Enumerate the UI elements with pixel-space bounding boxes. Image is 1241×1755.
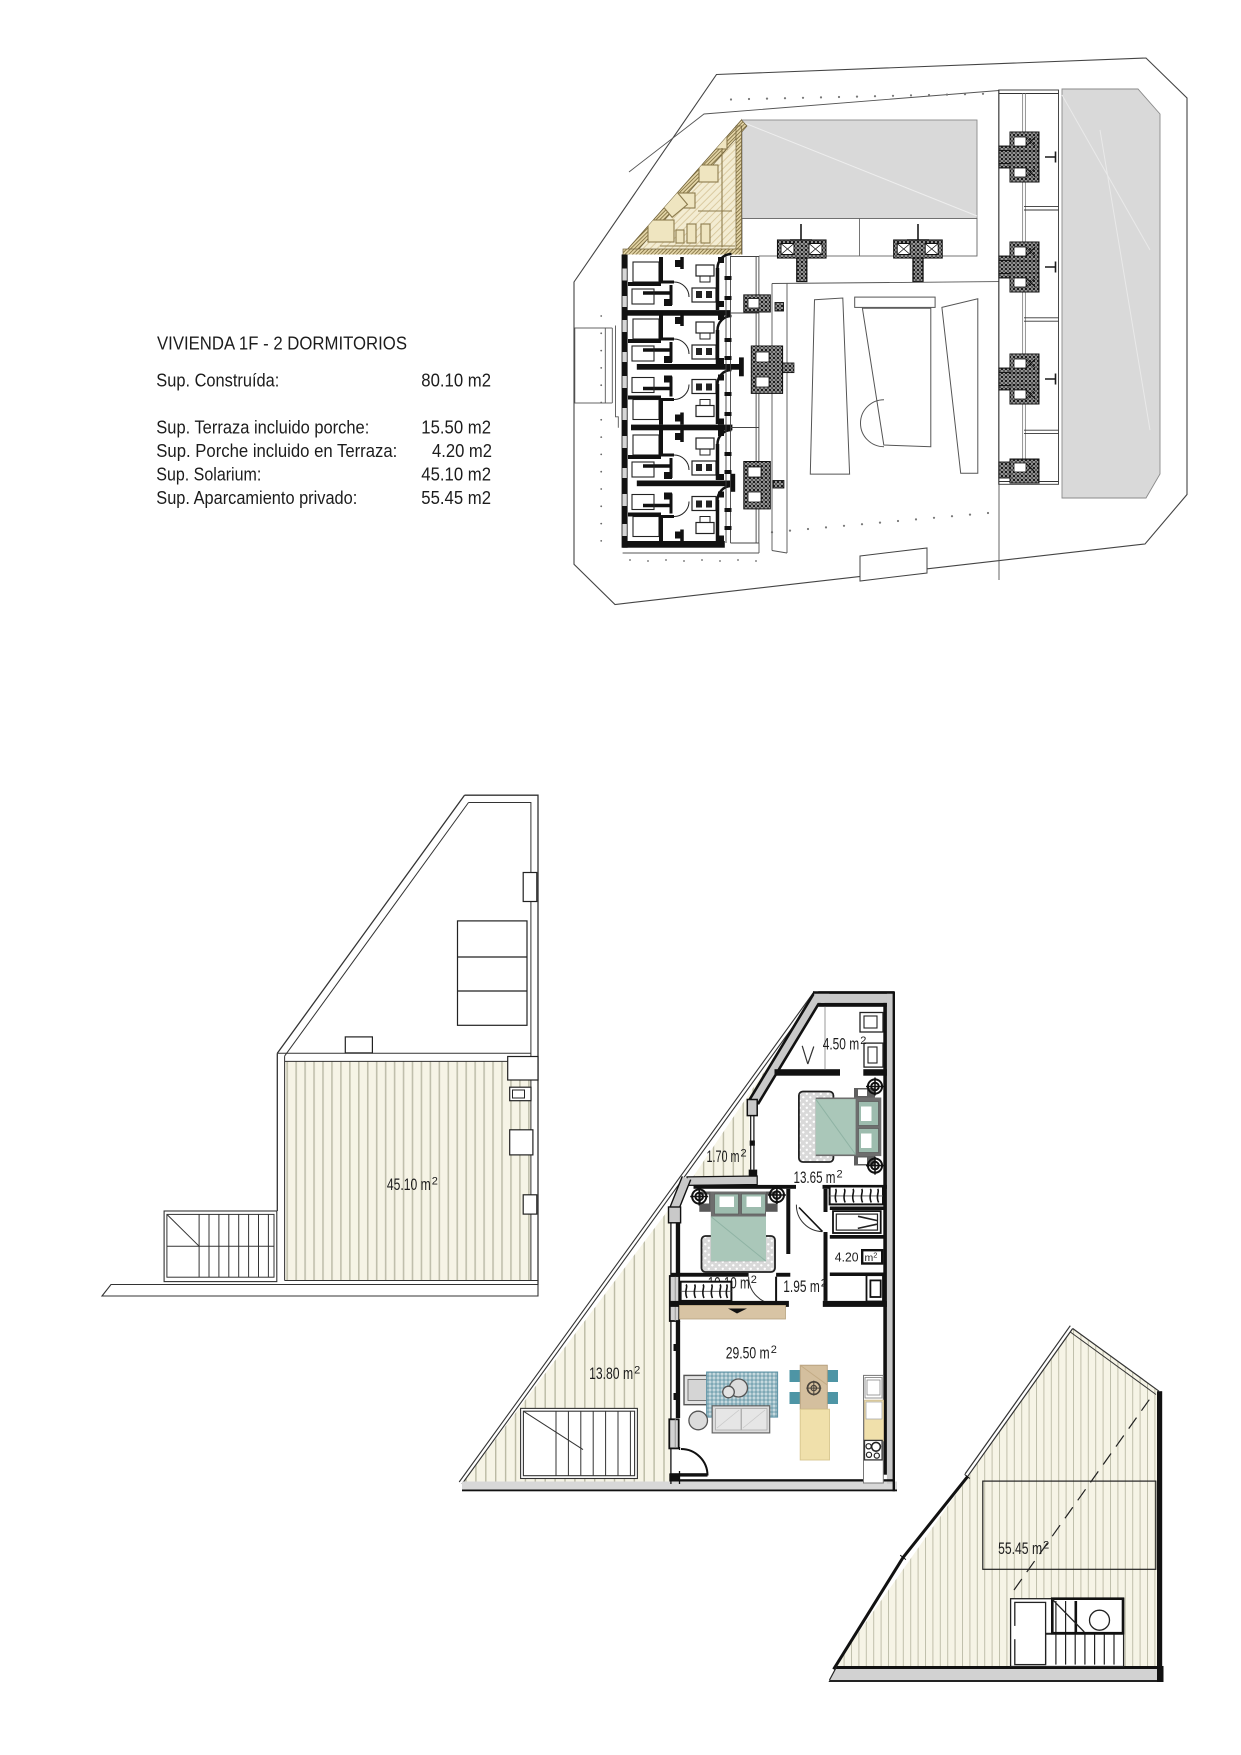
svg-text:13.80 m: 13.80 m bbox=[589, 1364, 633, 1383]
svg-text:4.50 m: 4.50 m bbox=[823, 1035, 860, 1054]
svg-text:55.45 m: 55.45 m bbox=[998, 1539, 1042, 1558]
svg-text:2: 2 bbox=[771, 1344, 777, 1356]
svg-text:29.50 m: 29.50 m bbox=[726, 1343, 770, 1362]
svg-text:Sup. Solarium:: Sup. Solarium: bbox=[156, 464, 261, 485]
svg-text:1.70 m: 1.70 m bbox=[707, 1147, 740, 1166]
svg-text:45.10 m: 45.10 m bbox=[387, 1175, 431, 1194]
svg-text:2: 2 bbox=[860, 1035, 866, 1047]
svg-text:Sup. Construída:: Sup. Construída: bbox=[156, 369, 279, 390]
svg-text:2: 2 bbox=[837, 1168, 843, 1180]
svg-text:45.10 m2: 45.10 m2 bbox=[421, 464, 491, 485]
svg-text:4.20: 4.20 bbox=[835, 1251, 859, 1265]
svg-text:Sup. Aparcamiento privado:: Sup. Aparcamiento privado: bbox=[156, 487, 357, 508]
svg-text:2: 2 bbox=[751, 1274, 757, 1286]
svg-text:Sup. Terraza incluido porche:: Sup. Terraza incluido porche: bbox=[156, 417, 369, 438]
svg-text:4.20 m2: 4.20 m2 bbox=[432, 440, 492, 461]
svg-text:15.50 m2: 15.50 m2 bbox=[421, 417, 491, 438]
svg-text:2: 2 bbox=[634, 1365, 640, 1377]
svg-text:13.65 m: 13.65 m bbox=[794, 1168, 836, 1187]
svg-text:2: 2 bbox=[432, 1176, 438, 1188]
svg-text:1.95 m: 1.95 m bbox=[783, 1277, 820, 1296]
svg-text:Sup. Porche incluido en Terraz: Sup. Porche incluido en Terraza: bbox=[156, 440, 397, 461]
svg-text:2: 2 bbox=[1043, 1540, 1049, 1552]
svg-text:80.10 m2: 80.10 m2 bbox=[421, 369, 491, 390]
svg-text:VIVIENDA 1F - 2 DORMITORIOS: VIVIENDA 1F - 2 DORMITORIOS bbox=[157, 333, 407, 354]
svg-text:55.45 m2: 55.45 m2 bbox=[421, 487, 491, 508]
svg-text:2: 2 bbox=[741, 1148, 747, 1160]
svg-text:2: 2 bbox=[821, 1277, 827, 1289]
